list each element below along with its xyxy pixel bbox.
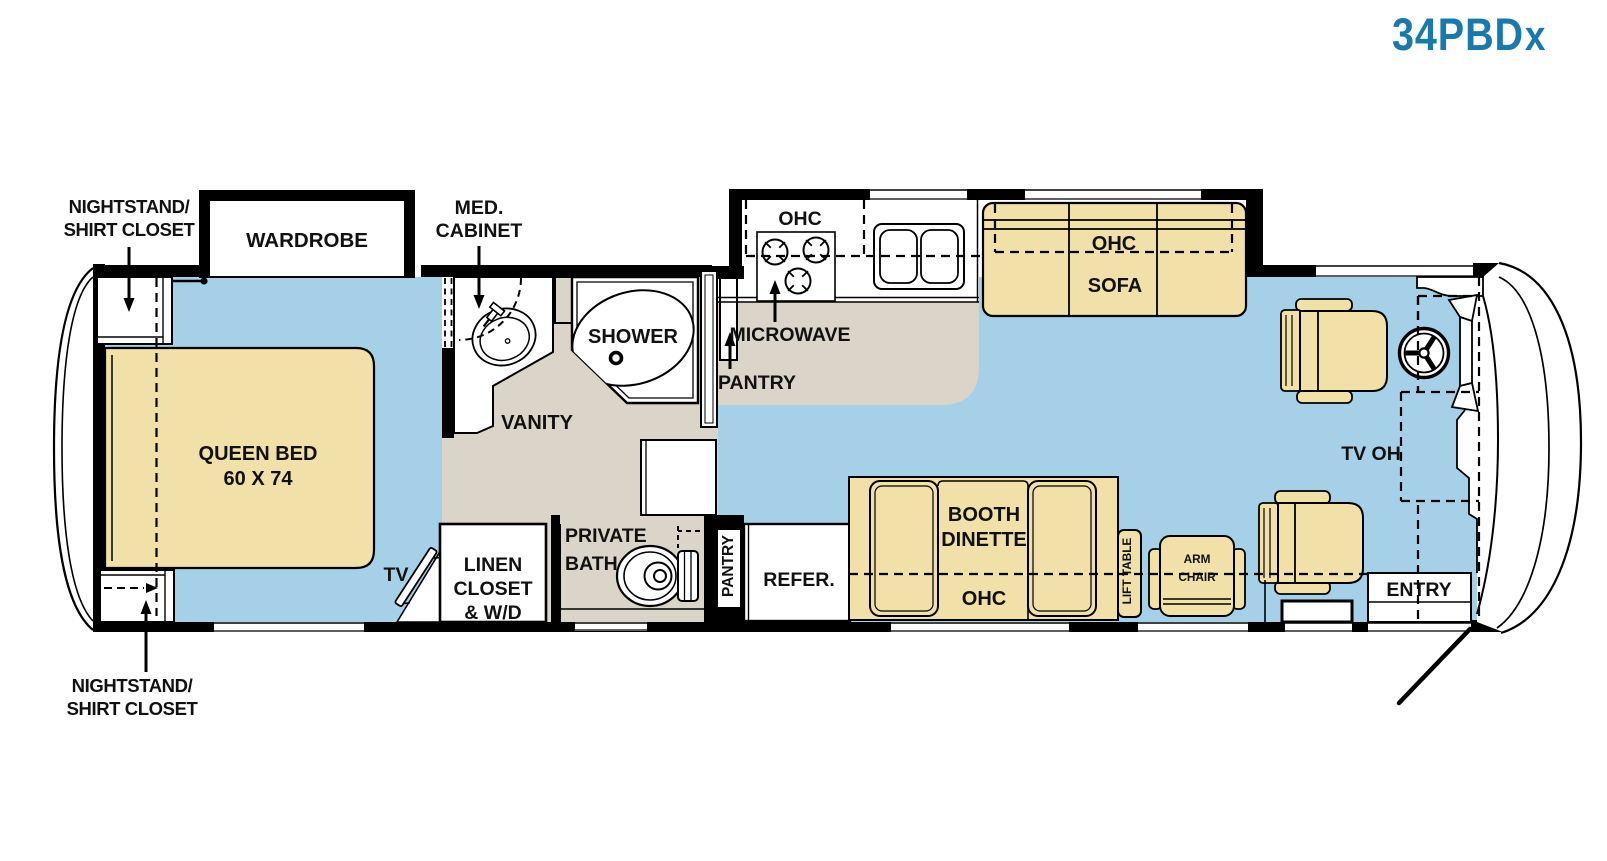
svg-text:NIGHTSTAND/: NIGHTSTAND/: [69, 196, 190, 217]
svg-text:NIGHTSTAND/: NIGHTSTAND/: [72, 675, 193, 696]
svg-text:SHIRT CLOSET: SHIRT CLOSET: [67, 698, 199, 719]
svg-text:OHC: OHC: [962, 588, 1006, 610]
svg-text:SHOWER: SHOWER: [588, 326, 679, 348]
svg-text:34PBD: 34PBD: [1392, 10, 1524, 60]
svg-text:OHC: OHC: [778, 208, 821, 230]
svg-text:WARDROBE: WARDROBE: [246, 229, 368, 252]
svg-text:60 X 74: 60 X 74: [224, 468, 294, 490]
svg-text:LINEN: LINEN: [464, 554, 523, 576]
svg-text:PANTRY: PANTRY: [718, 372, 796, 394]
svg-text:MICROWAVE: MICROWAVE: [730, 324, 851, 346]
svg-text:VANITY: VANITY: [501, 412, 574, 434]
svg-text:ARM: ARM: [1184, 552, 1211, 566]
svg-text:MED.: MED.: [455, 197, 504, 219]
svg-text:CABINET: CABINET: [436, 220, 523, 242]
svg-text:TV OH: TV OH: [1341, 443, 1401, 465]
svg-text:QUEEN BED: QUEEN BED: [199, 443, 318, 465]
svg-text:OHC: OHC: [1092, 233, 1136, 255]
svg-text:& W/D: & W/D: [464, 602, 521, 624]
svg-text:BATH: BATH: [565, 553, 618, 575]
svg-text:CHAIR: CHAIR: [1178, 570, 1216, 584]
svg-text:TV: TV: [384, 564, 409, 586]
svg-text:SHIRT CLOSET: SHIRT CLOSET: [64, 219, 196, 240]
svg-text:CLOSET: CLOSET: [453, 578, 532, 600]
svg-text:PRIVATE: PRIVATE: [565, 525, 647, 547]
svg-text:REFER.: REFER.: [763, 569, 835, 591]
svg-text:SOFA: SOFA: [1088, 275, 1142, 297]
svg-text:BOOTH: BOOTH: [948, 504, 1020, 526]
svg-text:x: x: [1525, 13, 1546, 60]
svg-text:DINETTE: DINETTE: [941, 529, 1027, 551]
svg-text:LIFT TABLE: LIFT TABLE: [1120, 538, 1134, 605]
svg-text:PANTRY: PANTRY: [720, 534, 737, 597]
